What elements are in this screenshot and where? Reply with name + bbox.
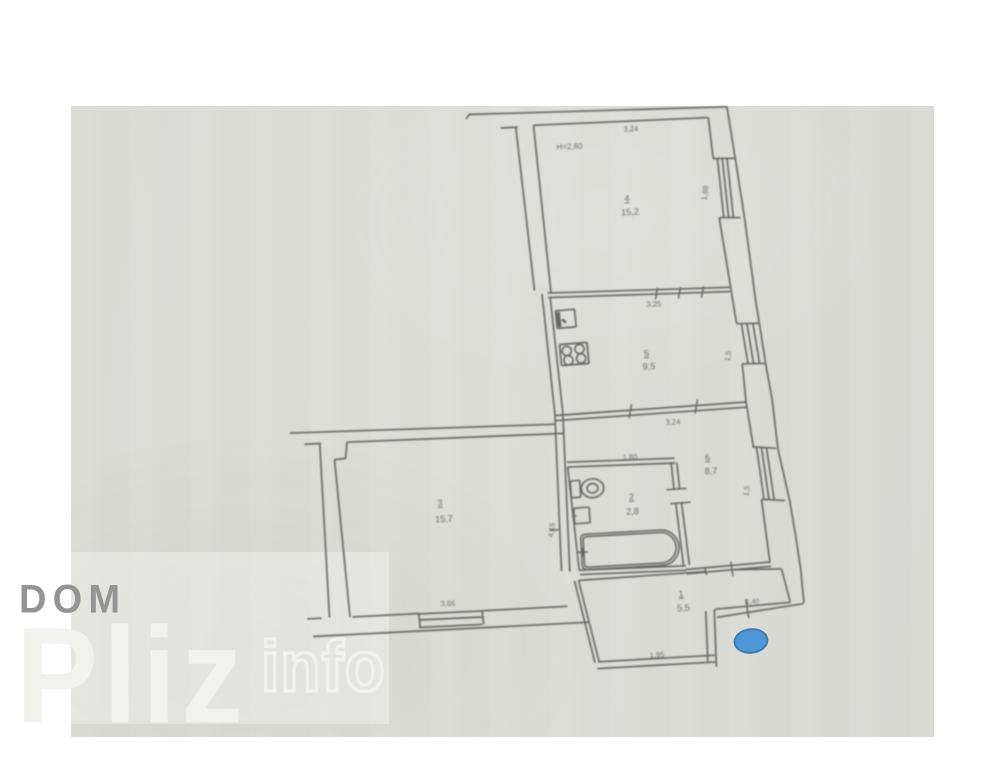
svg-text:3,66: 3,66	[440, 599, 455, 609]
svg-text:4,15: 4,15	[546, 522, 557, 538]
svg-text:1,80: 1,80	[622, 452, 637, 462]
svg-text:5,5: 5,5	[677, 603, 690, 614]
svg-text:1,88: 1,88	[700, 185, 711, 201]
svg-text:3: 3	[437, 498, 442, 508]
svg-text:5: 5	[644, 348, 649, 358]
svg-text:15,2: 15,2	[621, 207, 639, 218]
svg-text:H=2,80: H=2,80	[556, 142, 583, 152]
svg-text:4: 4	[624, 193, 629, 203]
svg-text:1,5: 1,5	[741, 485, 751, 496]
svg-text:Pliz: Pliz	[16, 598, 248, 751]
svg-text:3,24: 3,24	[665, 417, 680, 427]
svg-text:info: info	[261, 626, 386, 706]
svg-text:9,5: 9,5	[642, 361, 655, 372]
svg-text:8,7: 8,7	[704, 466, 717, 477]
svg-text:3,25: 3,25	[646, 299, 661, 309]
svg-text:1,95: 1,95	[649, 650, 664, 660]
svg-text:2,8: 2,8	[626, 506, 639, 517]
svg-text:1,5: 1,5	[723, 350, 733, 361]
svg-text:2: 2	[629, 492, 634, 502]
svg-text:3,24: 3,24	[623, 124, 638, 134]
svg-text:1: 1	[678, 589, 684, 599]
svg-text:6: 6	[705, 452, 710, 462]
svg-text:1,40: 1,40	[746, 598, 760, 606]
svg-text:15,7: 15,7	[435, 514, 453, 525]
